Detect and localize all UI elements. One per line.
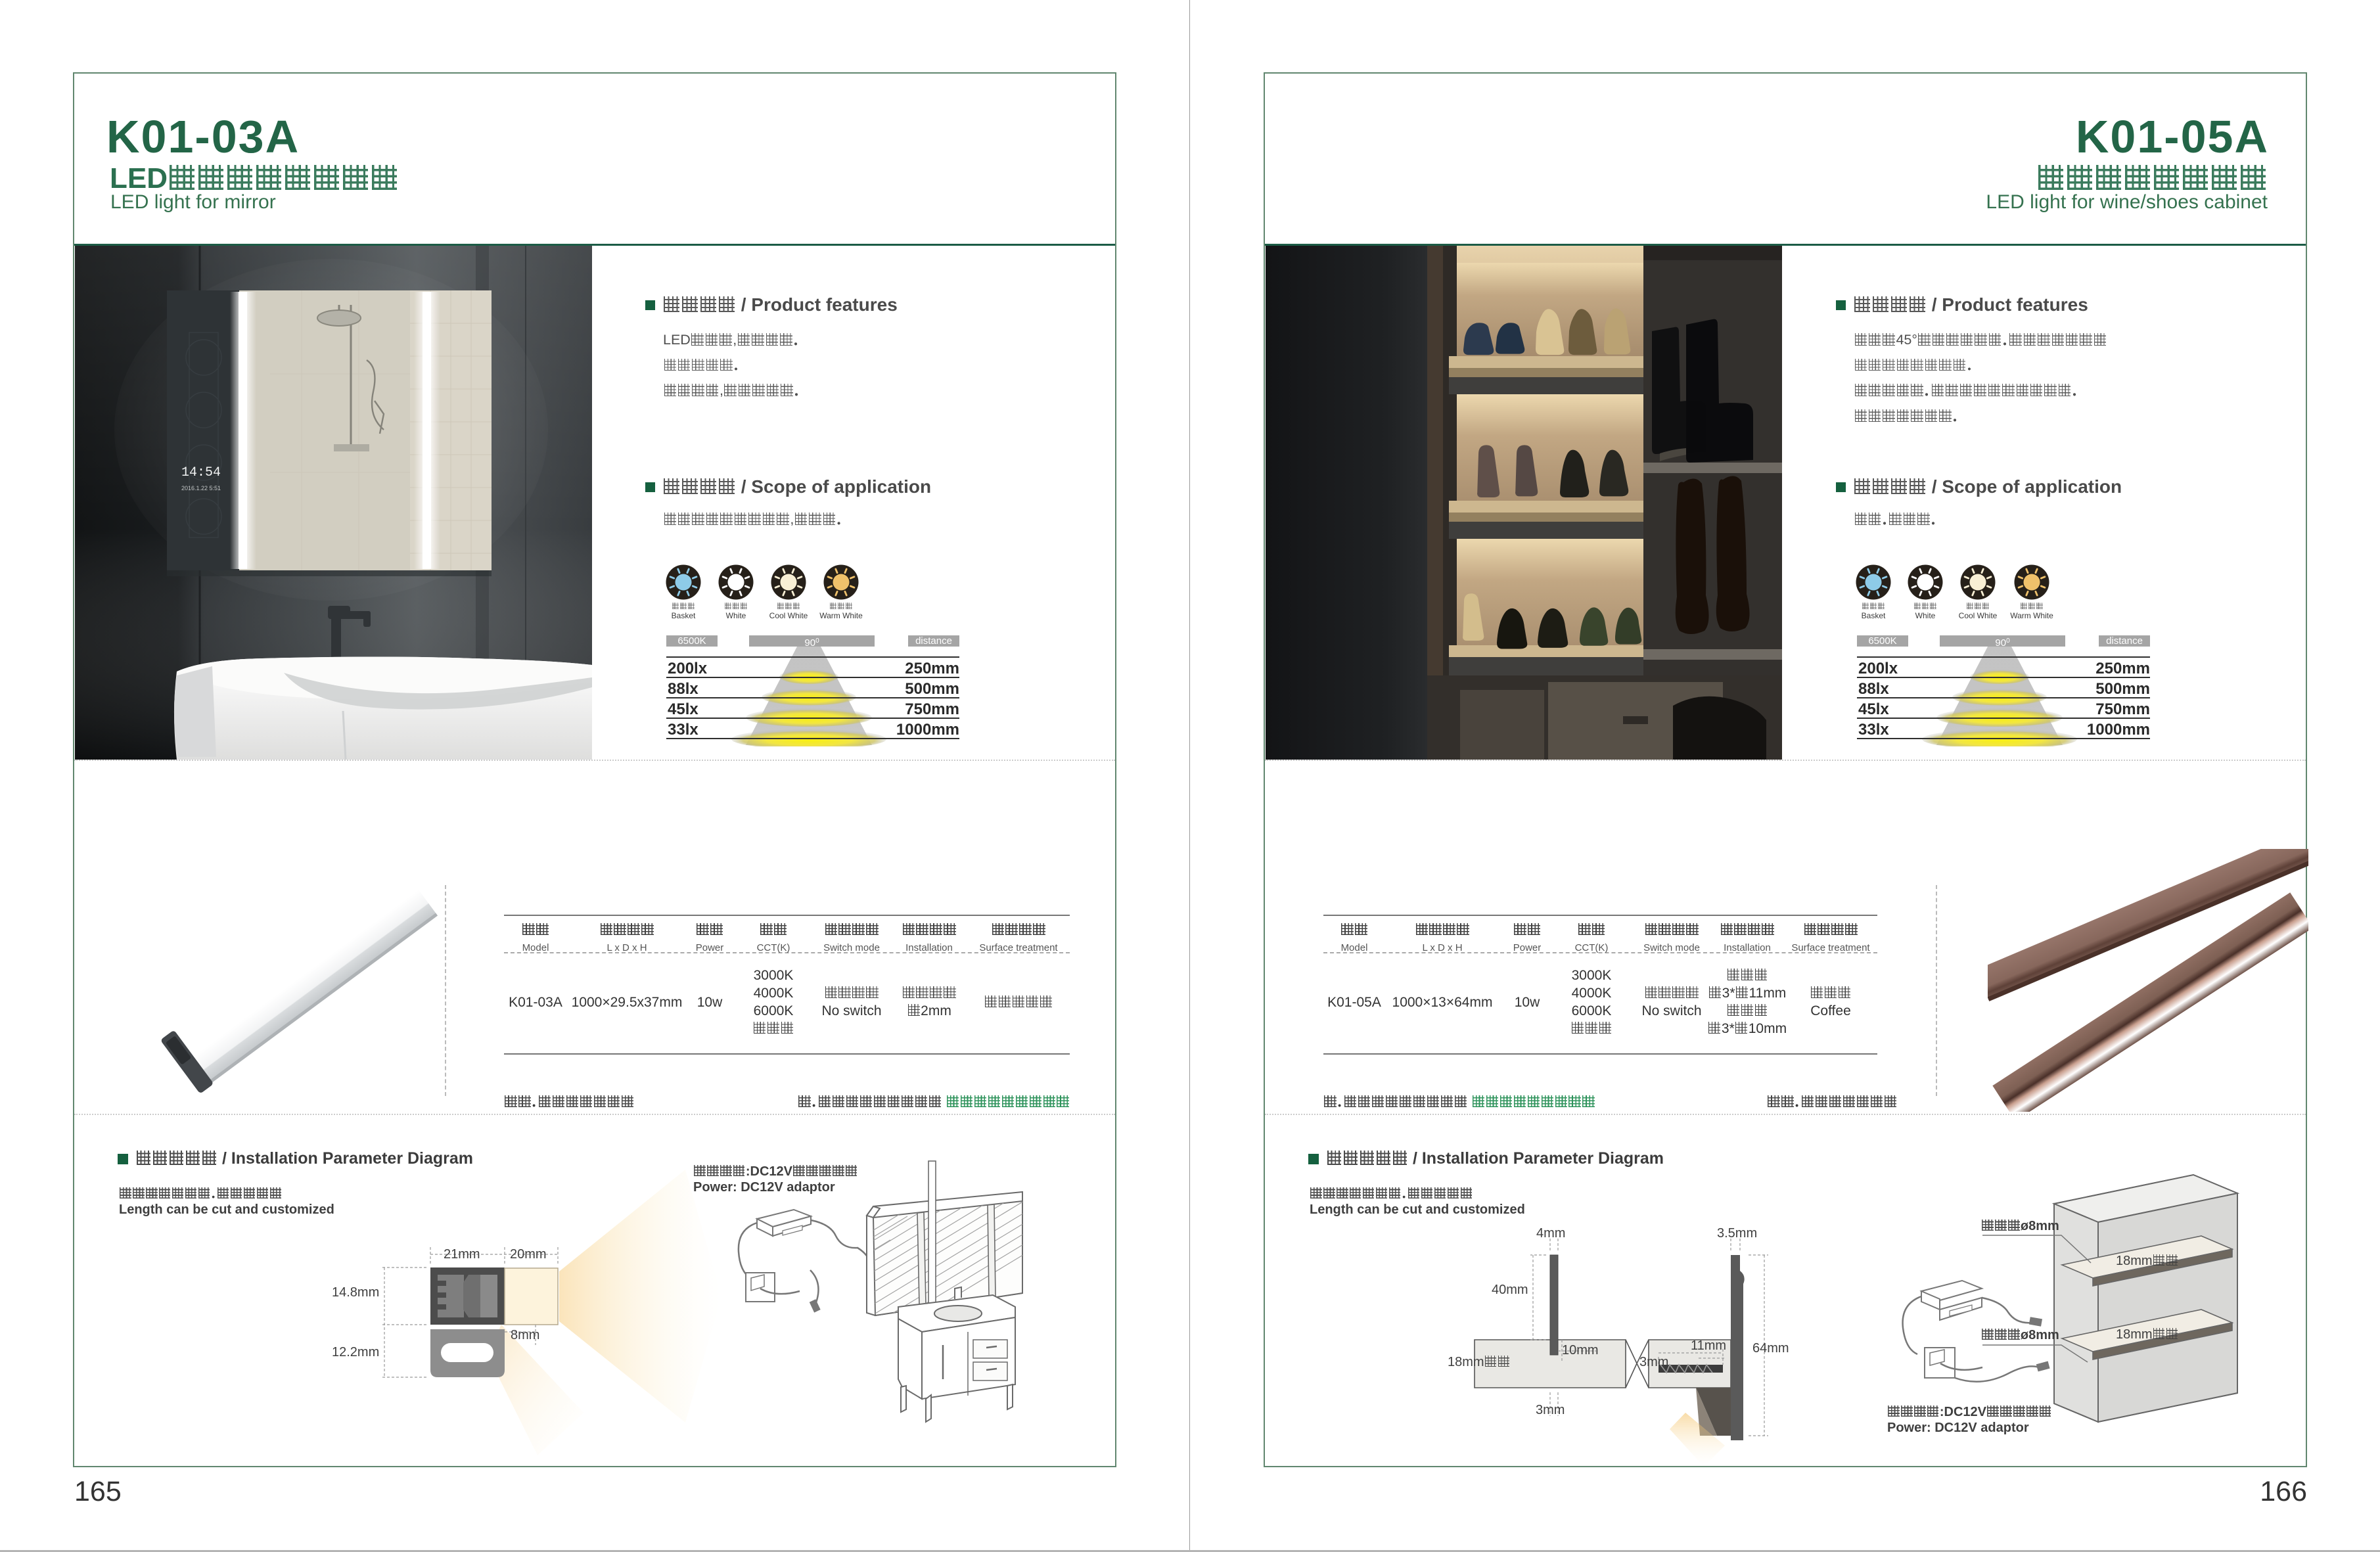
svg-text:2016.1.22 5:51: 2016.1.22 5:51 [181,485,221,491]
svg-text:14:54: 14:54 [181,465,221,480]
